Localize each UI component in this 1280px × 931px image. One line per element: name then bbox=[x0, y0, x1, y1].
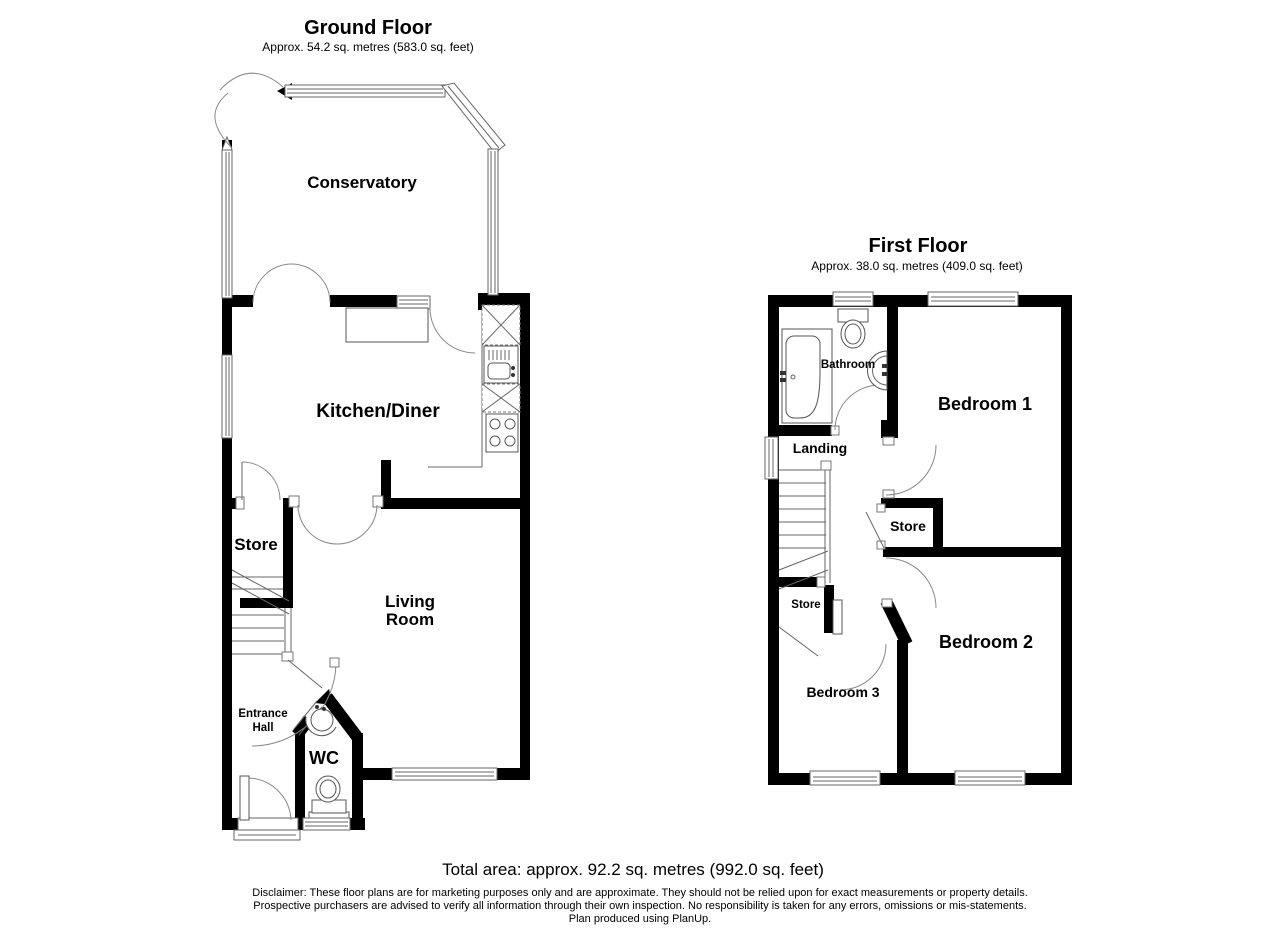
floorplan-drawing: Ground Floor Approx. 54.2 sq. metres (58… bbox=[0, 0, 1280, 931]
ff-right-wall bbox=[1061, 295, 1072, 785]
first-floor-subtitle: Approx. 38.0 sq. metres (409.0 sq. feet) bbox=[811, 259, 1022, 273]
ff-store-door-frame-top bbox=[877, 504, 885, 512]
room-label-conservatory: Conservatory bbox=[307, 173, 417, 192]
ff-door-pillar bbox=[881, 420, 898, 438]
gf-living-door-frame-right bbox=[373, 496, 383, 507]
gf-conservatory-door-arc-2 bbox=[215, 93, 232, 148]
room-label-store-upper: Store bbox=[890, 518, 926, 534]
floorplan-page: Ground Floor Approx. 54.2 sq. metres (58… bbox=[0, 0, 1280, 931]
gf-kitchen-top-wall-a bbox=[232, 295, 253, 307]
room-label-kitchen-diner: Kitchen/Diner bbox=[316, 401, 440, 422]
room-label-store-lower: Store bbox=[791, 599, 820, 611]
ff-top-wall bbox=[768, 295, 1072, 307]
wc-toilet-icon bbox=[309, 776, 349, 818]
ff-bedroom2-door-arc bbox=[886, 558, 936, 608]
ff-bathroom-bottom-wall bbox=[779, 425, 832, 436]
gf-right-wall bbox=[520, 293, 530, 780]
gf-front-door-arc bbox=[249, 778, 291, 820]
ff-bedroom3-window bbox=[810, 771, 880, 785]
gf-french-door-arc-left bbox=[253, 264, 292, 302]
gf-wc-window bbox=[303, 818, 350, 830]
gf-front-door-leaf bbox=[240, 776, 249, 820]
disclaimer-line-1: Disclaimer: These floor plans are for ma… bbox=[252, 887, 1028, 899]
gf-kitchen-living-divider bbox=[387, 498, 520, 509]
ff-bathroom-window bbox=[833, 292, 873, 306]
room-label-bathroom: Bathroom bbox=[821, 359, 875, 371]
ff-bedroom2-door-frame bbox=[882, 599, 892, 607]
ff-lower-store-top-wall bbox=[768, 577, 818, 587]
ff-lower-store-door-leaf bbox=[779, 627, 818, 656]
gf-kitchen-top-wall-b bbox=[330, 295, 397, 307]
gf-conservatory-door-arc-1 bbox=[220, 73, 283, 90]
ff-lower-store-door-frame bbox=[817, 577, 825, 587]
room-label-living-1: Living bbox=[385, 592, 435, 611]
ff-bedroom2-window bbox=[955, 771, 1025, 785]
gf-living-double-door-arc-left bbox=[298, 505, 337, 544]
gf-store-bottom-wall bbox=[240, 598, 293, 608]
ground-floor-plan: Ground Floor Approx. 54.2 sq. metres (58… bbox=[215, 17, 530, 840]
room-label-hall-2: Hall bbox=[252, 722, 273, 734]
gf-stairs-door-leaf bbox=[288, 660, 322, 688]
gf-store-door-arc bbox=[242, 462, 280, 500]
kitchen-hob-icon bbox=[486, 414, 518, 452]
gf-serving-hatch bbox=[397, 296, 430, 309]
bath-icon bbox=[780, 329, 832, 423]
ff-stairs bbox=[779, 461, 831, 589]
ff-bed2-bed3-divider bbox=[897, 640, 908, 773]
disclaimer-line-2: Prospective purchasers are advised to ve… bbox=[253, 900, 1026, 912]
gf-store-right-wall bbox=[283, 498, 293, 608]
room-label-living-2: Room bbox=[386, 610, 434, 629]
ff-bathroom-bed1-divider bbox=[887, 307, 898, 422]
gf-conservatory-window-top bbox=[285, 85, 445, 97]
gf-conservatory-window-left bbox=[222, 150, 232, 298]
room-label-bedroom1: Bedroom 1 bbox=[938, 394, 1032, 414]
kitchen-worktop-island bbox=[346, 308, 428, 342]
ff-landing-window bbox=[765, 437, 778, 479]
ground-floor-subtitle: Approx. 54.2 sq. metres (583.0 sq. feet) bbox=[262, 40, 473, 54]
room-label-landing: Landing bbox=[793, 440, 847, 456]
gf-hall-door-frame bbox=[330, 658, 339, 667]
ff-bathroom-door-arc bbox=[835, 385, 880, 430]
room-label-store-ground: Store bbox=[234, 535, 277, 554]
first-floor-title: First Floor bbox=[869, 235, 968, 257]
gf-living-double-door-arc-right bbox=[337, 505, 377, 544]
ff-bedroom1-window bbox=[928, 292, 1018, 306]
gf-kitchen-window-left bbox=[222, 355, 232, 438]
ff-bedroom1-door-frame-bottom bbox=[883, 490, 894, 498]
room-label-hall-1: Entrance bbox=[238, 708, 287, 720]
ff-store-door-leaf bbox=[866, 512, 884, 548]
total-area-text: Total area: approx. 92.2 sq. metres (992… bbox=[442, 860, 824, 879]
kitchen-sink-icon bbox=[484, 346, 518, 383]
ff-bedroom1-door-frame-top bbox=[883, 437, 894, 445]
ground-floor-title: Ground Floor bbox=[304, 17, 432, 39]
bathroom-toilet-icon bbox=[838, 309, 868, 348]
room-label-wc: WC bbox=[309, 748, 339, 768]
gf-kitchen-door-arc bbox=[430, 308, 475, 353]
gf-conservatory-window-right bbox=[488, 149, 498, 295]
gf-living-door-frame-left bbox=[289, 496, 299, 507]
ff-left-wall bbox=[768, 295, 779, 785]
footer: Total area: approx. 92.2 sq. metres (992… bbox=[252, 860, 1028, 925]
disclaimer-line-3: Plan produced using PlanUp. bbox=[569, 913, 711, 925]
gf-wc-left-wall bbox=[295, 733, 305, 818]
room-label-bedroom2: Bedroom 2 bbox=[939, 632, 1033, 652]
first-floor-plan: First Floor Approx. 38.0 sq. metres (409… bbox=[765, 235, 1072, 785]
gf-wc-right-wall bbox=[352, 733, 363, 830]
room-label-bedroom3: Bedroom 3 bbox=[806, 684, 879, 700]
gf-french-door-arc-right bbox=[291, 264, 330, 302]
gf-conservatory-window-diagonal bbox=[442, 83, 505, 153]
gf-store-door-frame bbox=[236, 497, 244, 509]
ff-bedroom3-door-leaf bbox=[833, 600, 842, 634]
ff-bed1-bed2-wall bbox=[883, 547, 1072, 557]
ff-bedroom1-door-arc bbox=[886, 445, 936, 495]
gf-living-window bbox=[392, 768, 497, 780]
